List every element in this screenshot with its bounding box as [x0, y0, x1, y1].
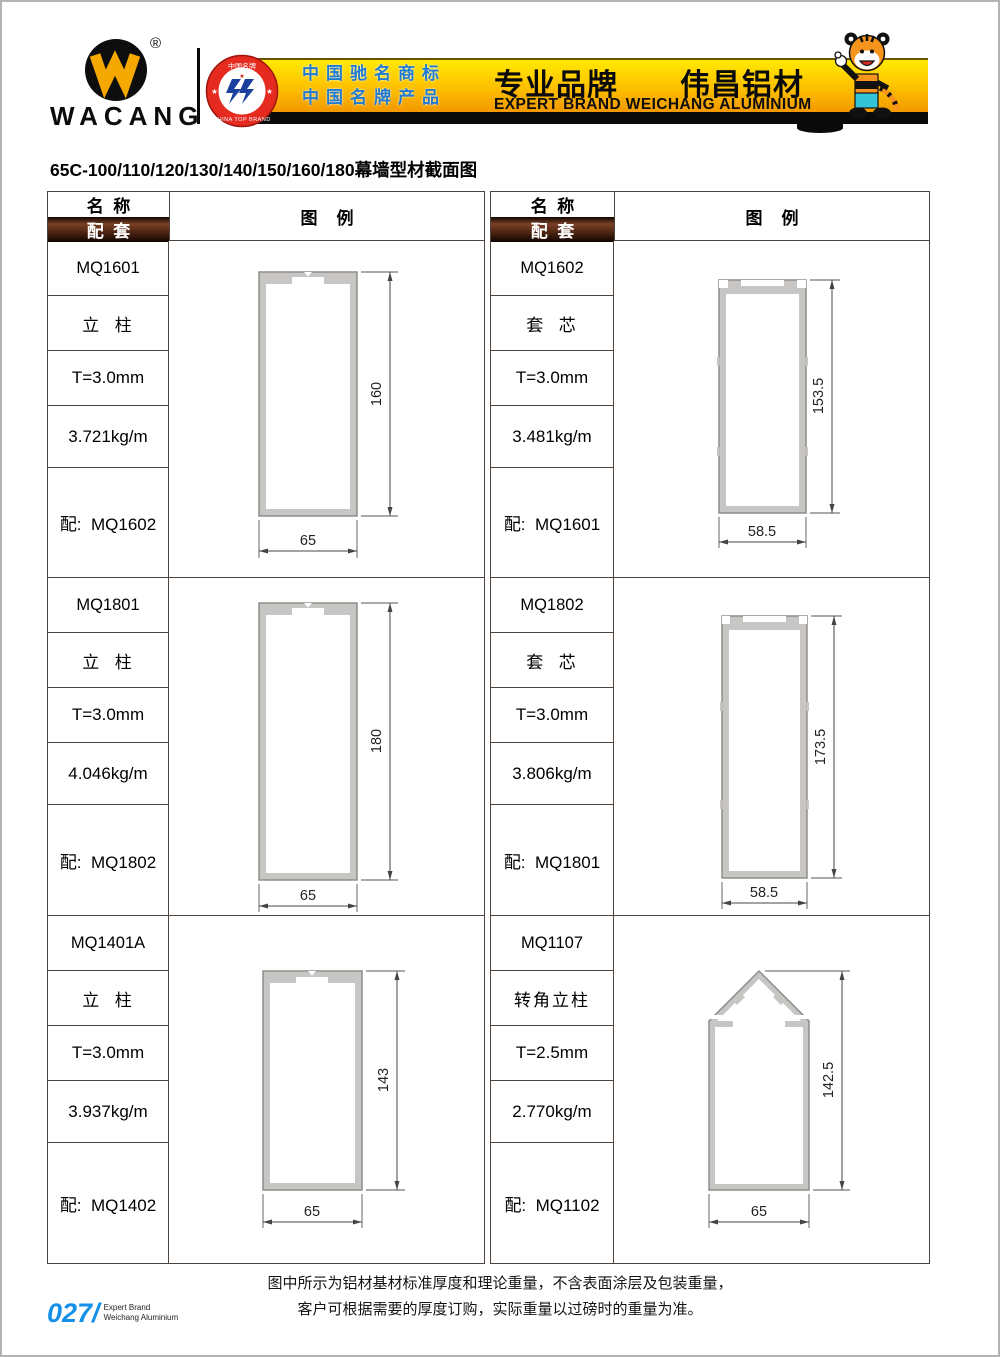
profile-block-mq1401a: MQ1401A 立 柱 T=3.0mm 3.937kg/m 配: MQ1402 [48, 916, 484, 1264]
profile-drawing-mq1601: 160 65 [169, 241, 484, 577]
profile-type: 立 柱 [48, 296, 168, 351]
profile-thickness: T=3.0mm [48, 688, 168, 743]
profile-weight: 3.806kg/m [491, 743, 613, 805]
profile-weight: 3.721kg/m [48, 406, 168, 468]
profile-match: 配: MQ1102 [491, 1143, 613, 1264]
profile-match: 配: MQ1402 [48, 1143, 168, 1264]
svg-text:65: 65 [304, 1204, 320, 1220]
svg-text:142.5: 142.5 [821, 1062, 837, 1098]
profile-code: MQ1601 [48, 241, 168, 296]
svg-text:65: 65 [751, 1204, 767, 1220]
profile-type: 转角立柱 [491, 971, 613, 1026]
page-title: 65C-100/110/120/130/140/150/160/180幕墙型材截… [50, 157, 477, 182]
banner-blue-claims: 中国驰名商标 中国名牌产品 [302, 62, 446, 110]
profile-drawing-mq1802: 173.5 58.5 [614, 578, 929, 915]
profile-weight: 2.770kg/m [491, 1081, 613, 1143]
profile-drawing-mq1801: 180 65 [169, 578, 484, 915]
profile-type: 套 芯 [491, 296, 613, 351]
catalog-page: ® WACANG 中国驰名商标 中国名牌产品 专业品牌 伟昌铝材 EXPERT … [0, 0, 1000, 1357]
svg-text:65: 65 [300, 533, 316, 549]
col-header-match: 配 套 [491, 217, 614, 242]
profile-thickness: T=3.0mm [491, 351, 613, 406]
profile-match: 配: MQ1802 [48, 805, 168, 915]
svg-text:★: ★ [211, 87, 218, 96]
col-header-name: 名 称 [491, 192, 614, 217]
profile-match: 配: MQ1801 [491, 805, 613, 915]
profile-block-mq1601: MQ1601 立 柱 T=3.0mm 3.721kg/m 配: MQ1602 [48, 241, 484, 578]
svg-text:58.5: 58.5 [748, 524, 776, 540]
profile-block-mq1602: MQ1602 套 芯 T=3.0mm 3.481kg/m 配: MQ1601 [491, 241, 929, 578]
footer-note-line1: 图中所示为铝材基材标准厚度和理论重量，不含表面涂层及包装重量， [2, 1272, 998, 1293]
claim-line-1: 中国驰名商标 [302, 62, 446, 86]
profile-weight: 3.937kg/m [48, 1081, 168, 1143]
profile-block-mq1801: MQ1801 立 柱 T=3.0mm 4.046kg/m 配: MQ1802 [48, 578, 484, 916]
profile-thickness: T=2.5mm [491, 1026, 613, 1081]
profile-code: MQ1602 [491, 241, 613, 296]
svg-text:173.5: 173.5 [813, 729, 829, 765]
page-number-label: Expert Brand Weichang Aluminium [104, 1303, 179, 1323]
claim-line-2: 中国名牌产品 [302, 86, 446, 110]
table-left-half: 名 称 配 套 图 例 MQ1601 立 柱 T=3.0mm 3.721kg/m… [47, 191, 485, 1264]
profile-type: 立 柱 [48, 633, 168, 688]
profile-thickness: T=3.0mm [48, 351, 168, 406]
registered-mark: ® [150, 35, 161, 52]
col-header-name: 名 称 [48, 192, 169, 217]
col-header-legend: 图 例 [615, 192, 929, 240]
profile-code: MQ1401A [48, 916, 168, 971]
table-header: 名 称 配 套 图 例 [48, 192, 484, 241]
tiger-mascot-icon [820, 24, 912, 122]
profile-block-mq1802: MQ1802 套 芯 T=3.0mm 3.806kg/m 配: MQ1801 [491, 578, 929, 916]
profile-thickness: T=3.0mm [48, 1026, 168, 1081]
wacang-logo-icon [84, 38, 148, 102]
svg-text:★: ★ [266, 87, 273, 96]
china-top-brand-badge-icon: 中国名牌 CHINA TOP BRAND ★ ★ ★ [205, 54, 279, 128]
svg-text:143: 143 [376, 1068, 392, 1092]
profile-match: 配: MQ1602 [48, 468, 168, 577]
table-right-half: 名 称 配 套 图 例 MQ1602 套 芯 T=3.0mm 3.481kg/m… [490, 191, 930, 1264]
profile-drawing-mq1401a: 143 65 [169, 916, 484, 1264]
profile-thickness: T=3.0mm [491, 688, 613, 743]
svg-text:★: ★ [239, 73, 244, 80]
col-header-legend: 图 例 [170, 192, 484, 240]
brand-name: WACANG [50, 101, 200, 132]
svg-text:中国名牌: 中国名牌 [228, 62, 256, 71]
svg-text:58.5: 58.5 [750, 885, 778, 901]
svg-text:65: 65 [300, 888, 316, 904]
svg-text:153.5: 153.5 [811, 378, 827, 414]
profile-weight: 4.046kg/m [48, 743, 168, 805]
svg-text:CHINA TOP BRAND: CHINA TOP BRAND [213, 117, 271, 123]
svg-text:160: 160 [369, 382, 385, 406]
banner-notch [797, 123, 843, 133]
col-header-match: 配 套 [48, 217, 169, 242]
profile-drawing-mq1602: 153.5 58.5 [614, 241, 929, 577]
svg-text:180: 180 [369, 729, 385, 753]
profile-code: MQ1107 [491, 916, 613, 971]
profile-type: 套 芯 [491, 633, 613, 688]
profile-match: 配: MQ1601 [491, 468, 613, 577]
table-header: 名 称 配 套 图 例 [491, 192, 929, 241]
profile-weight: 3.481kg/m [491, 406, 613, 468]
page-number: 027/ [47, 1300, 100, 1326]
page-number-block: 027/ Expert Brand Weichang Aluminium [47, 1300, 178, 1326]
banner-subtitle: EXPERT BRAND WEICHANG ALUMINIUM [494, 96, 812, 114]
profile-block-mq1107: MQ1107 转角立柱 T=2.5mm 2.770kg/m 配: MQ1102 [491, 916, 929, 1264]
profile-drawing-mq1107: 142.5 65 [614, 916, 929, 1264]
profile-code: MQ1802 [491, 578, 613, 633]
profile-type: 立 柱 [48, 971, 168, 1026]
profile-code: MQ1801 [48, 578, 168, 633]
header-divider [197, 48, 200, 124]
